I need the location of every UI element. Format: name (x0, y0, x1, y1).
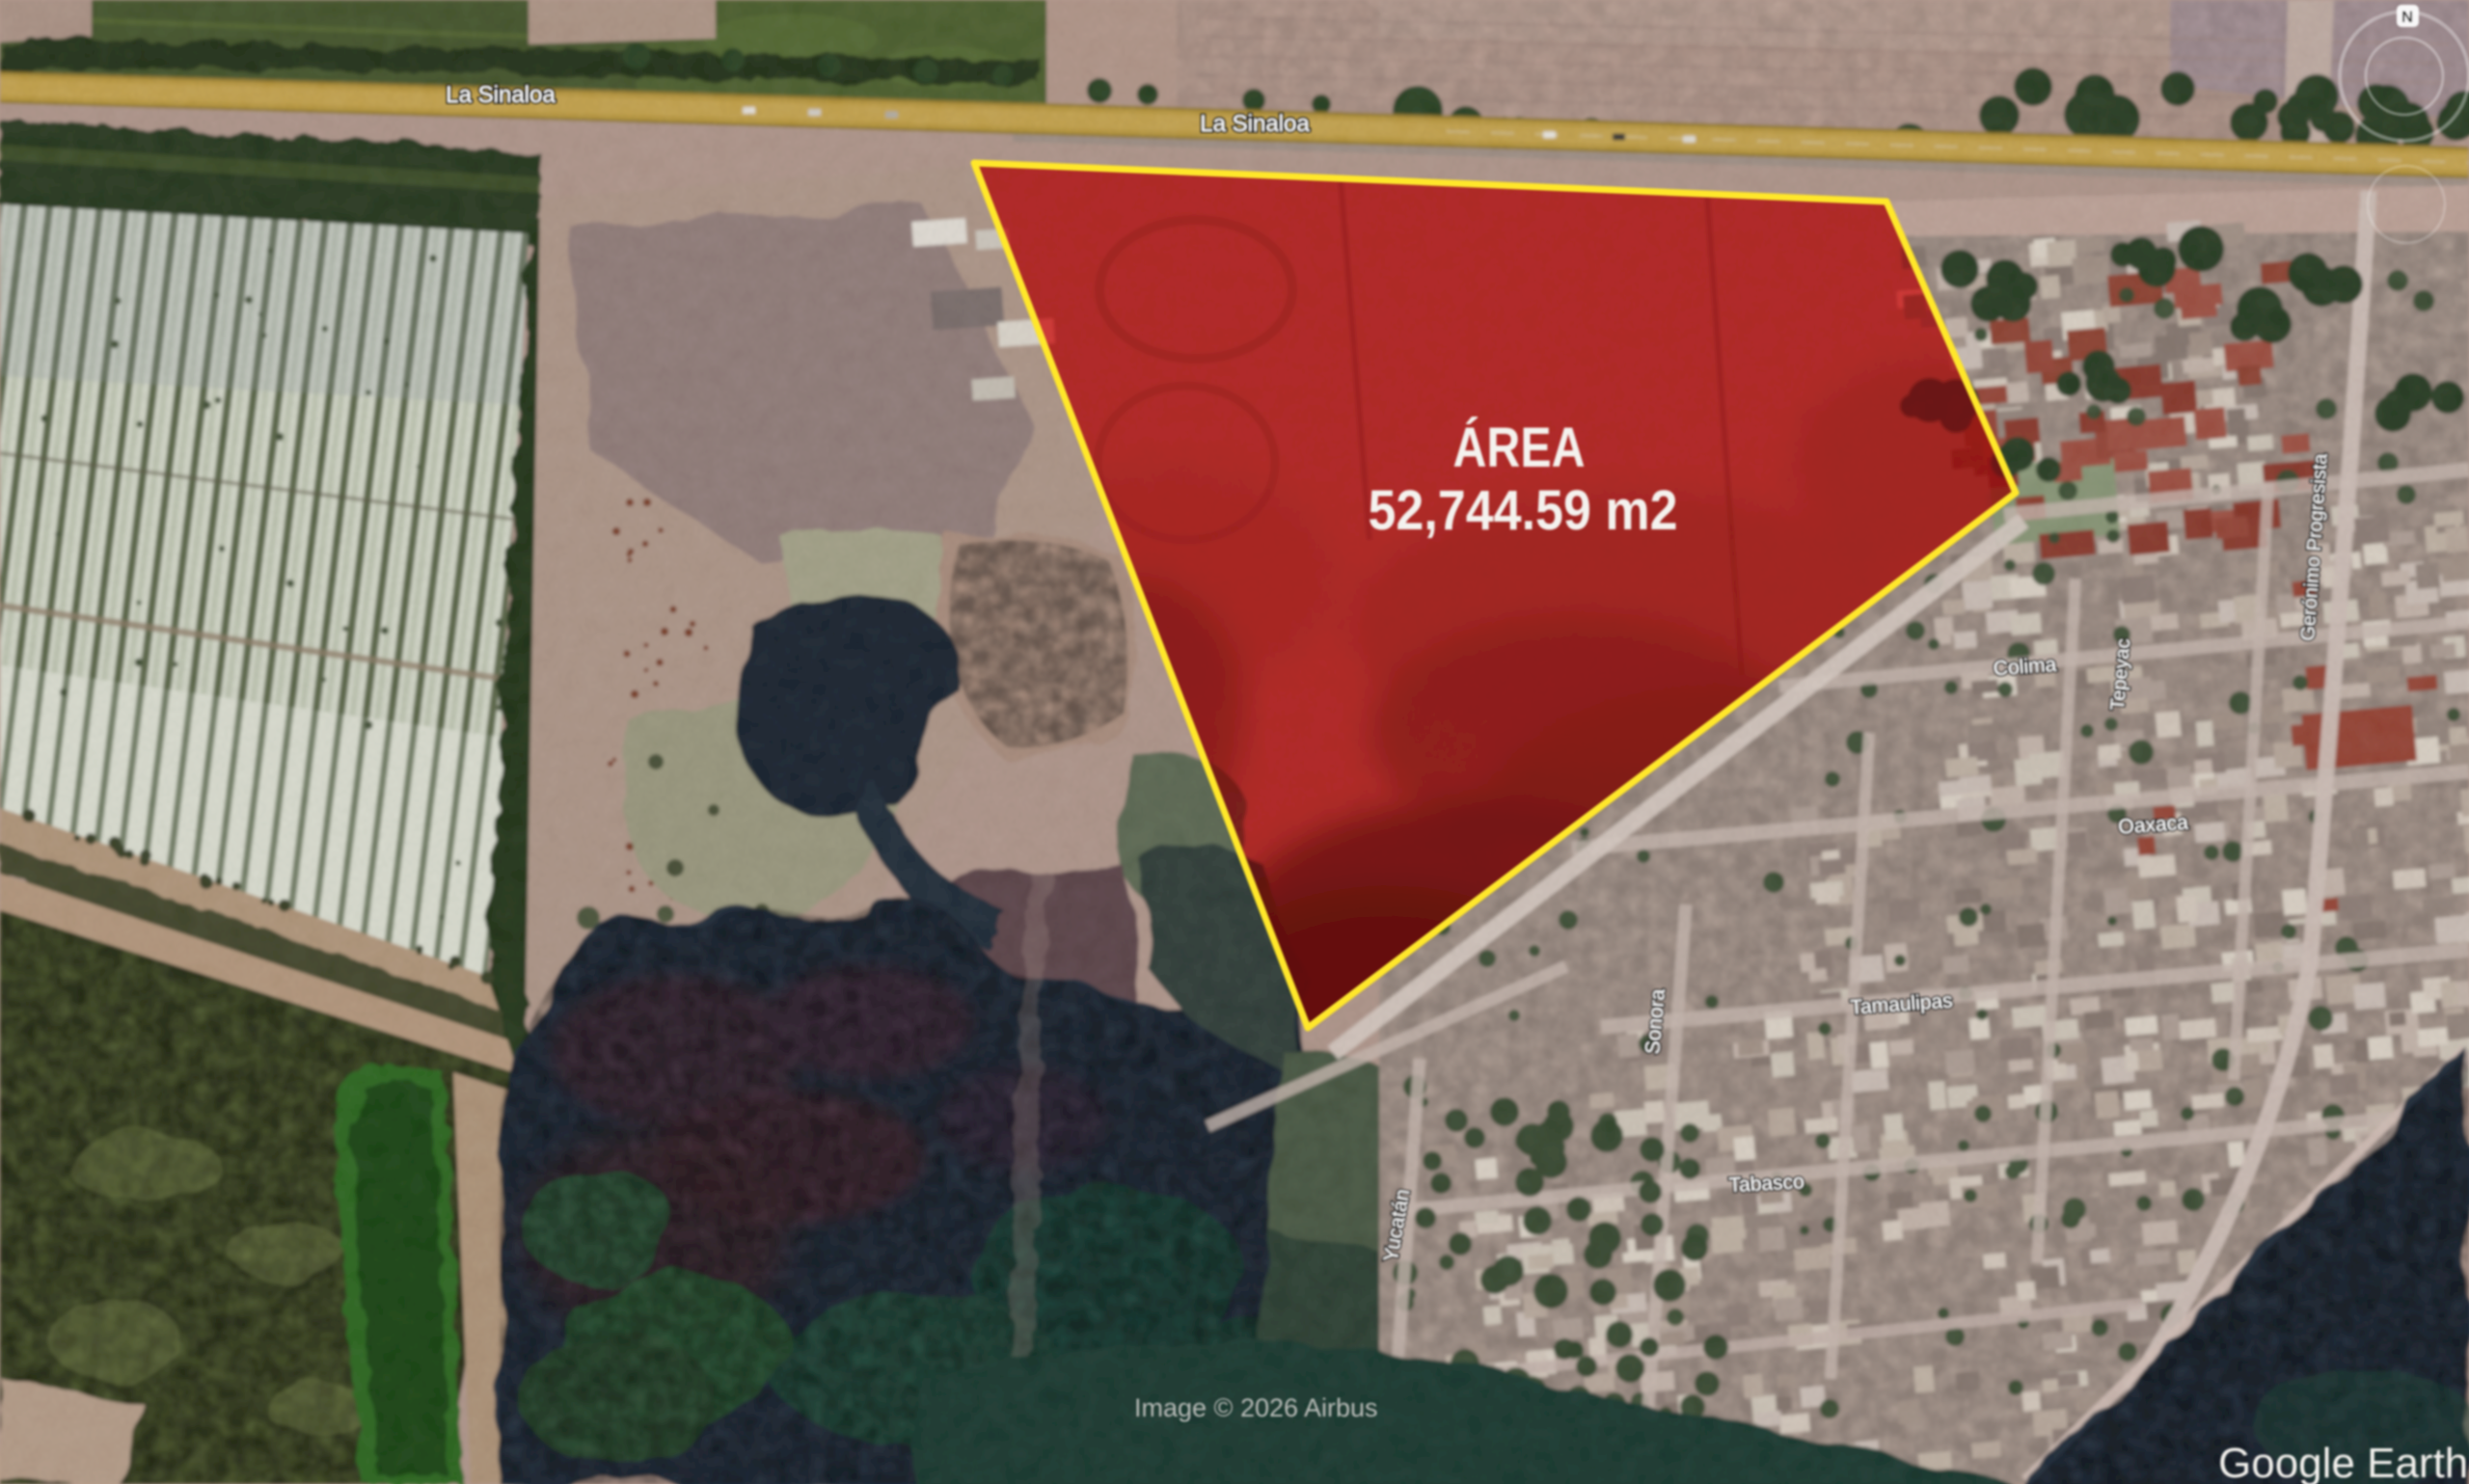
svg-text:ÁREA: ÁREA (1453, 417, 1586, 479)
svg-text:La Sinaloa: La Sinaloa (1200, 111, 1310, 137)
svg-text:Image © 2026 Airbus: Image © 2026 Airbus (1134, 1393, 1378, 1422)
svg-text:Colima: Colima (1993, 654, 2057, 681)
svg-text:52,744.59 m2: 52,744.59 m2 (1369, 479, 1678, 542)
svg-text:Google Earth: Google Earth (2218, 1440, 2468, 1484)
svg-text:N: N (2401, 8, 2413, 26)
svg-text:La Sinaloa: La Sinaloa (446, 82, 556, 108)
svg-text:Tabasco: Tabasco (1728, 1171, 1804, 1197)
